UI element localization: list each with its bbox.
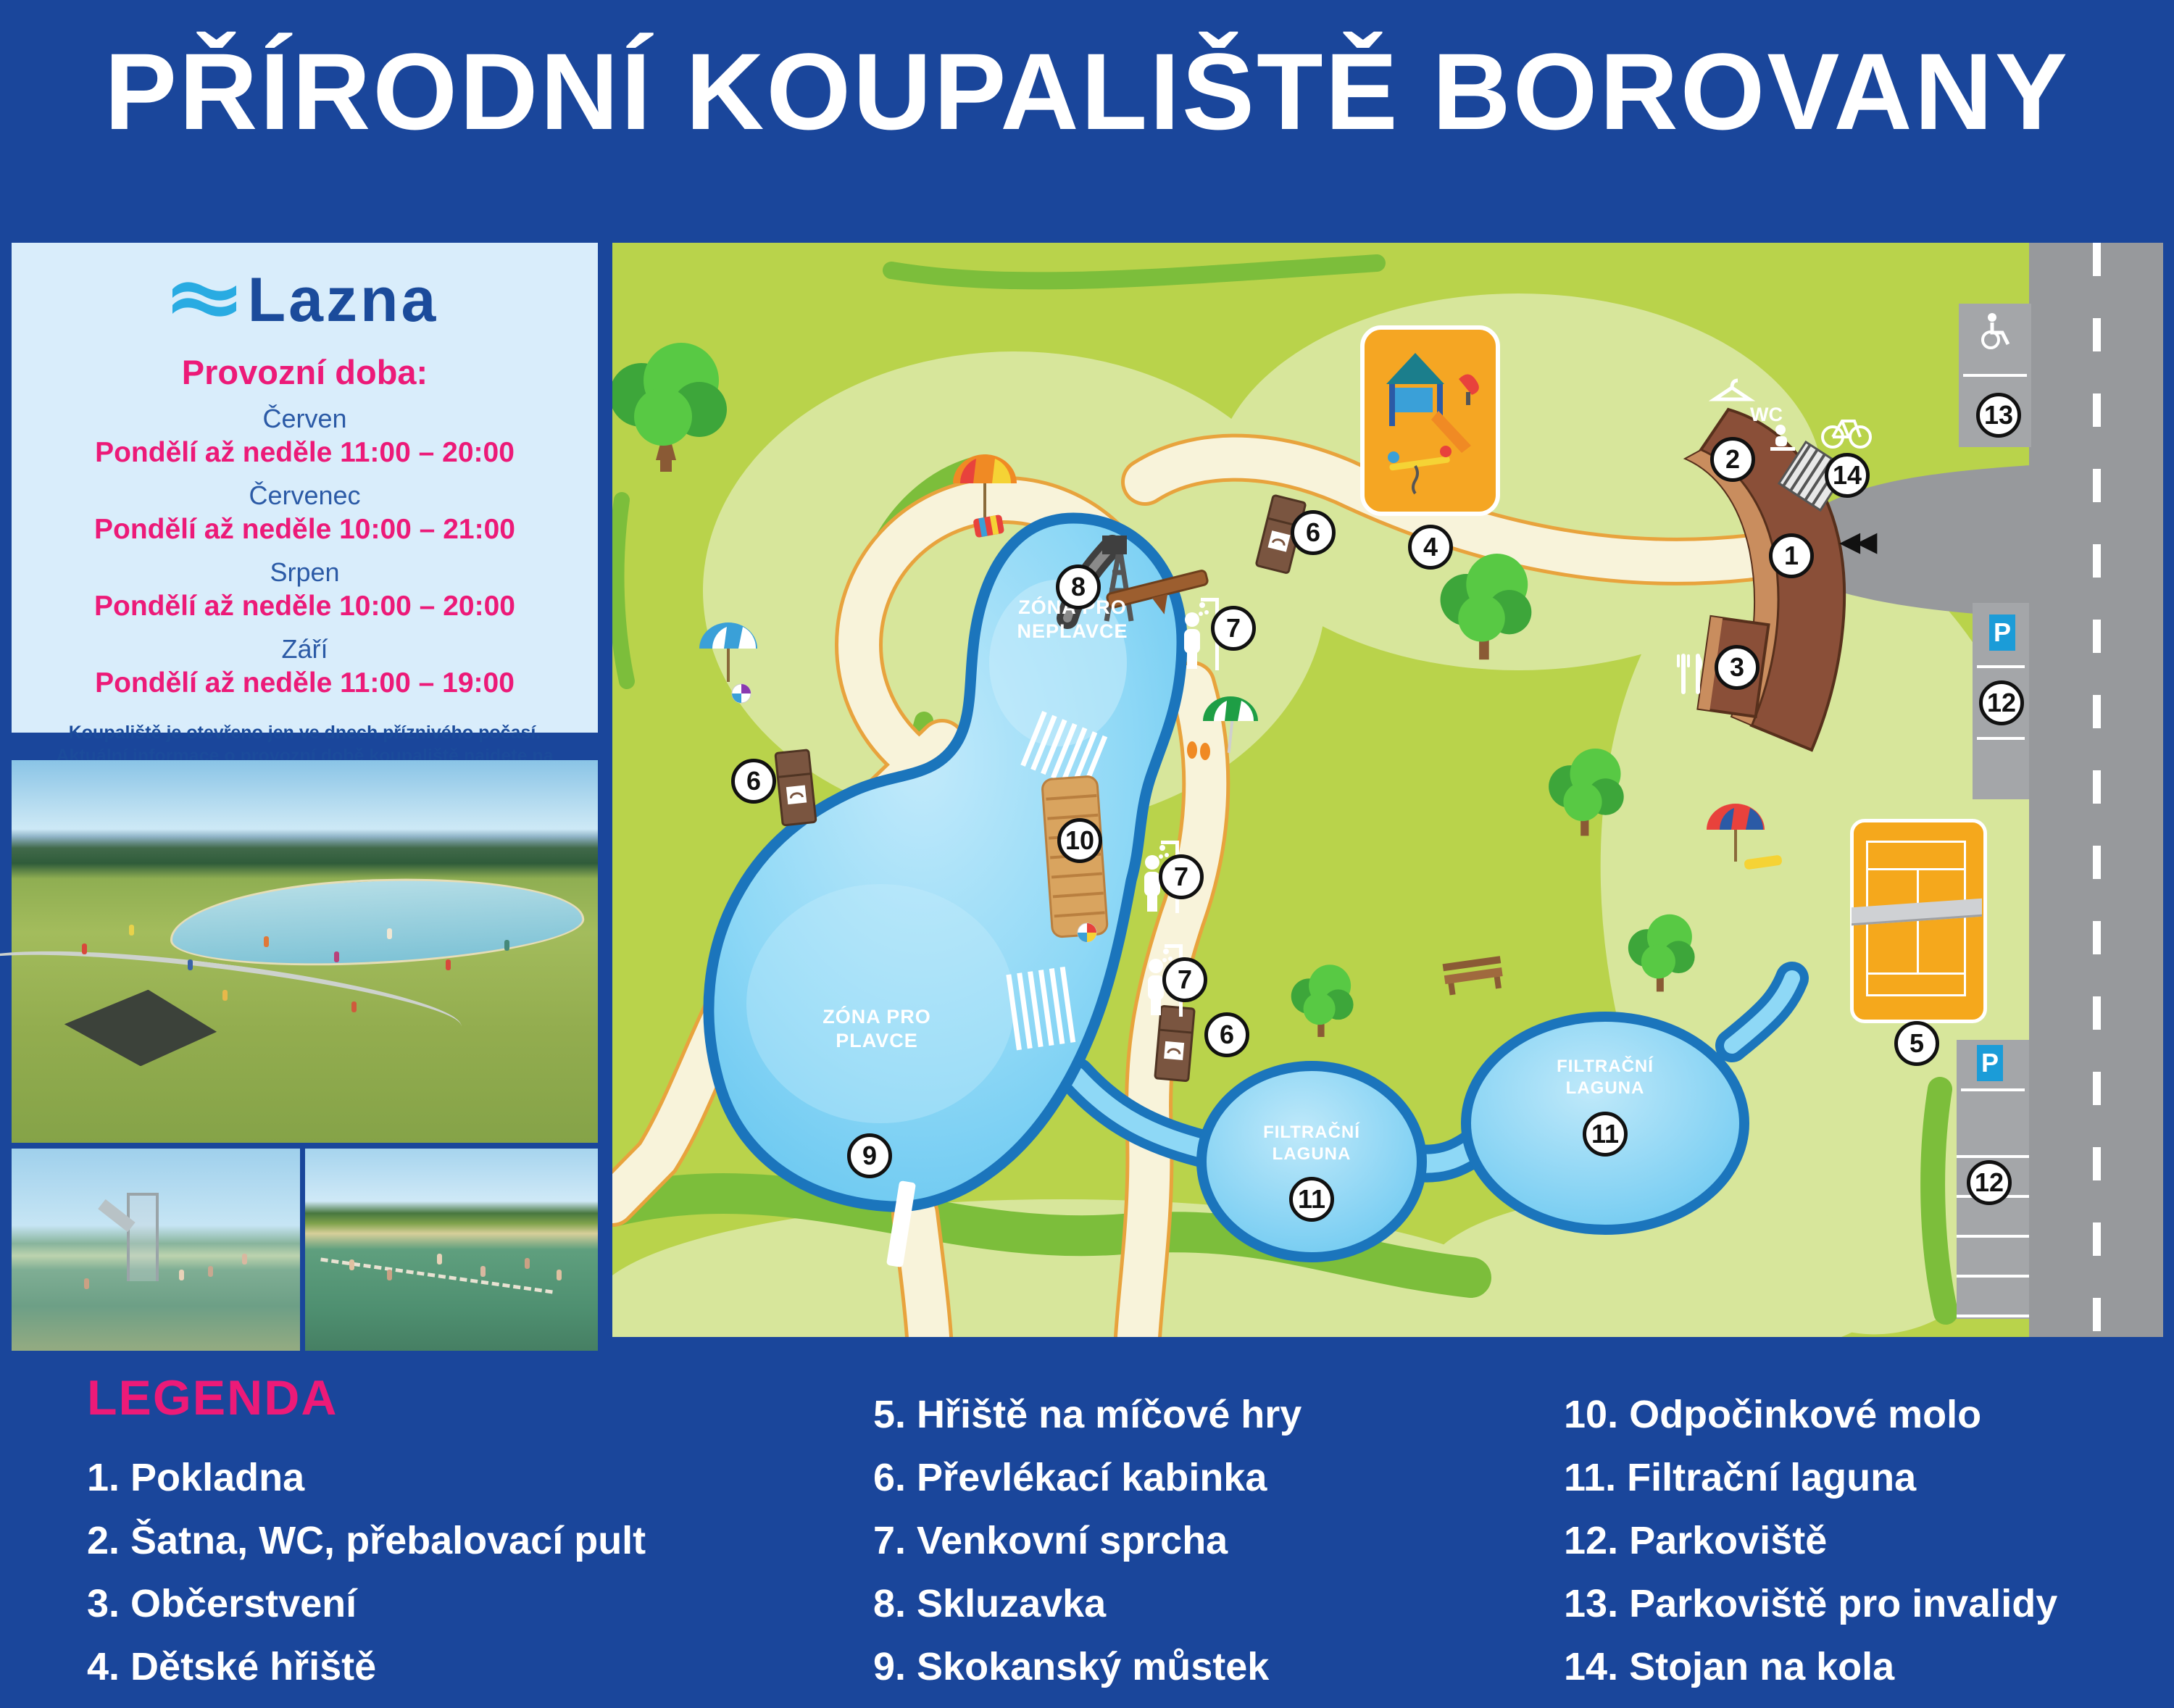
map-marker-13: 13	[1976, 393, 2021, 438]
site-map: P P ZÓNA PRONEPLAVCE ZÓNA PROPLAVCE FILT…	[612, 243, 2163, 1337]
map-marker-7: 7	[1162, 957, 1207, 1002]
map-marker-6: 6	[731, 759, 776, 804]
map-marker-9: 9	[847, 1133, 892, 1178]
schedule-hours: Pondělí až neděle 10:00 – 20:00	[94, 591, 515, 622]
legend-item-10: 10. Odpočinkové molo	[1564, 1392, 1981, 1437]
schedule-month: Září	[281, 634, 328, 665]
changing-cabin-icon	[1155, 1006, 1195, 1081]
map-marker-11: 11	[1289, 1177, 1334, 1222]
photo-lagoon	[305, 1149, 598, 1351]
opening-hours-heading: Provozní doba:	[182, 352, 428, 392]
map-marker-6: 6	[1204, 1012, 1249, 1057]
bicycle-icon	[1823, 421, 1870, 447]
map-marker-12: 12	[1967, 1160, 2012, 1205]
map-marker-11: 11	[1583, 1112, 1628, 1157]
lagoon-label: FILTRAČNÍLAGUNA	[1557, 1056, 1654, 1099]
info-panel: Lazna Provozní doba: Červen Pondělí až n…	[12, 243, 598, 733]
legend-item-5: 5. Hřiště na míčové hry	[873, 1392, 1302, 1437]
legend-heading: LEGENDA	[87, 1370, 338, 1426]
lagoon-label: FILTRAČNÍLAGUNA	[1263, 1122, 1360, 1165]
legend-item-8: 8. Skluzavka	[873, 1581, 1106, 1626]
wc-label: WC	[1750, 404, 1783, 426]
schedule-hours: Pondělí až neděle 10:00 – 21:00	[94, 514, 515, 546]
map-marker-12: 12	[1979, 680, 2024, 725]
map-marker-7: 7	[1159, 854, 1204, 899]
photo-slide	[12, 1149, 300, 1351]
legend-item-1: 1. Pokladna	[87, 1455, 304, 1500]
map-marker-7: 7	[1211, 606, 1256, 651]
map-artwork	[612, 243, 2163, 1337]
entrance-arrows: ◀◀	[1839, 525, 1873, 558]
map-marker-14: 14	[1825, 453, 1870, 498]
map-marker-2: 2	[1710, 437, 1755, 482]
parking-sign: P	[1989, 615, 2015, 651]
parking-sign: P	[1977, 1045, 2003, 1081]
map-marker-5: 5	[1894, 1021, 1939, 1066]
legend-item-9: 9. Skokanský můstek	[873, 1644, 1269, 1689]
legend-item-14: 14. Stojan na kola	[1564, 1644, 1894, 1689]
road	[2029, 243, 2163, 1337]
map-marker-1: 1	[1769, 533, 1814, 578]
legend-item-6: 6. Převlékací kabinka	[873, 1455, 1267, 1500]
map-marker-4: 4	[1408, 525, 1453, 570]
photo-pool	[168, 868, 587, 975]
logo-wordmark: Lazna	[248, 264, 439, 336]
legend-item-4: 4. Dětské hřiště	[87, 1644, 376, 1689]
tennis-court	[1850, 819, 1987, 1023]
note-line1: Koupaliště je otevřeno jen ve dnech příz…	[69, 722, 541, 743]
poster: PŘÍRODNÍ KOUPALIŠTĚ BOROVANY Lazna Provo…	[0, 0, 2174, 1708]
map-marker-6: 6	[1291, 510, 1336, 555]
tree	[1291, 965, 1354, 1037]
legend-item-3: 3. Občerstvení	[87, 1581, 357, 1626]
legend-item-13: 13. Parkoviště pro invalidy	[1564, 1581, 2057, 1626]
page-title: PŘÍRODNÍ KOUPALIŠTĚ BOROVANY	[0, 29, 2174, 154]
legend-item-7: 7. Venkovní sprcha	[873, 1518, 1228, 1563]
legend-item-11: 11. Filtrační laguna	[1564, 1455, 1916, 1500]
road-center-line	[2093, 243, 2101, 1337]
legend-item-2: 2. Šatna, WC, přebalovací pult	[87, 1518, 646, 1563]
schedule-month: Srpen	[270, 557, 339, 588]
tree	[612, 343, 727, 472]
zone-swimmers-label: ZÓNA PROPLAVCE	[822, 1005, 931, 1053]
beach-ball-icon	[1078, 923, 1096, 942]
map-marker-10: 10	[1057, 818, 1102, 863]
map-marker-8: 8	[1056, 565, 1101, 609]
playground	[1362, 328, 1498, 514]
lazna-logo: Lazna	[171, 264, 439, 336]
wave-icon	[171, 276, 238, 325]
schedule-month: Červen	[262, 404, 346, 434]
schedule-month: Červenec	[249, 480, 360, 511]
photo-overview	[12, 760, 598, 1143]
photo-slide-tower	[127, 1193, 159, 1280]
map-marker-3: 3	[1715, 645, 1759, 690]
wheelchair-icon	[1978, 312, 2011, 350]
changing-cabin-icon	[775, 750, 816, 825]
bench-icon	[1443, 956, 1504, 996]
legend-item-12: 12. Parkoviště	[1564, 1518, 1827, 1563]
schedule-hours: Pondělí až neděle 11:00 – 20:00	[95, 437, 515, 469]
schedule-hours: Pondělí až neděle 11:00 – 19:00	[95, 667, 515, 699]
